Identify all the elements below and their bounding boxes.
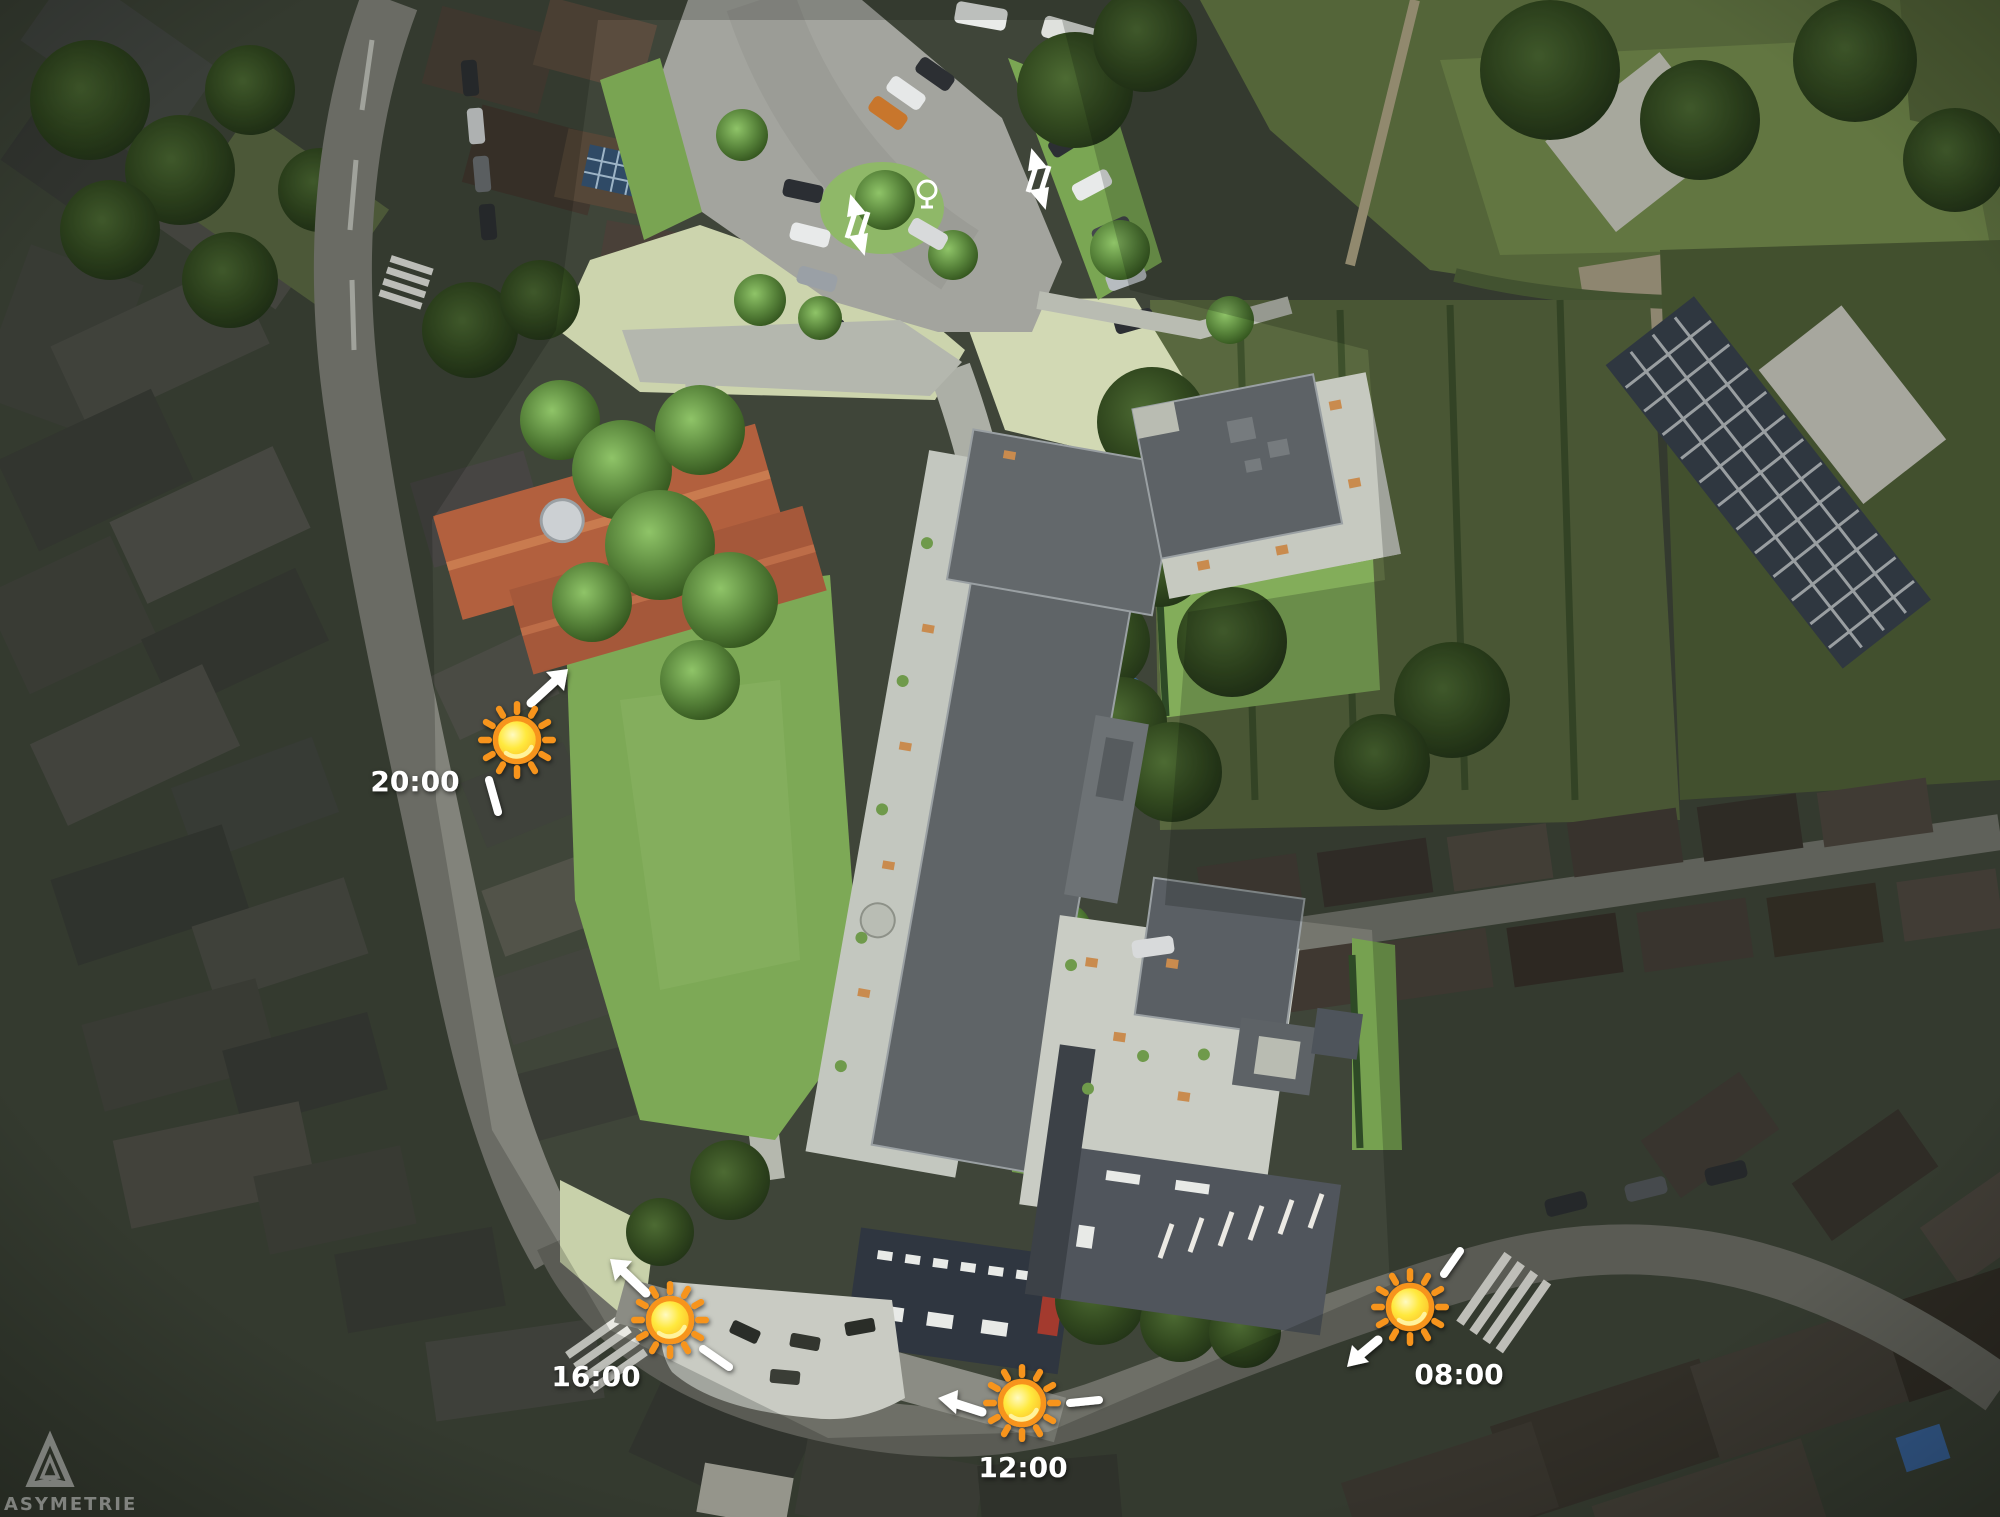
sun-time-label: 20:00	[370, 765, 459, 798]
aerial-sun-study-image: 20:00 16:00 12:00	[0, 0, 2000, 1517]
sun-time-label: 08:00	[1414, 1358, 1503, 1391]
sun-time-label: 16:00	[551, 1360, 640, 1393]
sun-time-label: 12:00	[978, 1451, 1067, 1484]
watermark-text: ASYMETRIE	[4, 1494, 137, 1515]
aerial-basemap	[0, 0, 2000, 1517]
sun-path-segment	[1070, 1400, 1099, 1403]
